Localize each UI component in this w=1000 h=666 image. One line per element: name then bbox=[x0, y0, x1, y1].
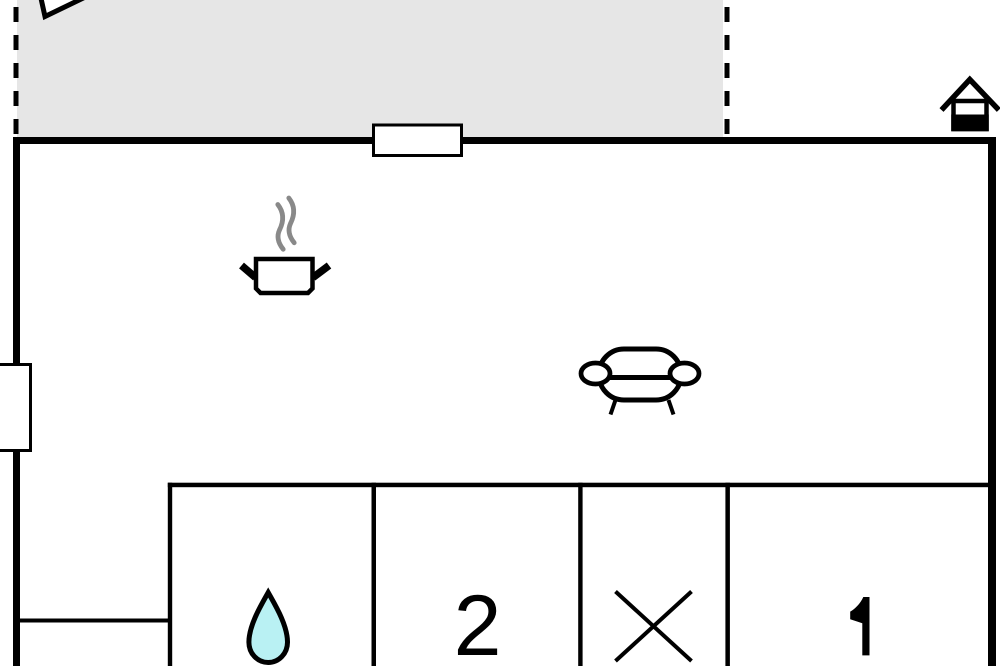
svg-text:2: 2 bbox=[454, 578, 502, 666]
